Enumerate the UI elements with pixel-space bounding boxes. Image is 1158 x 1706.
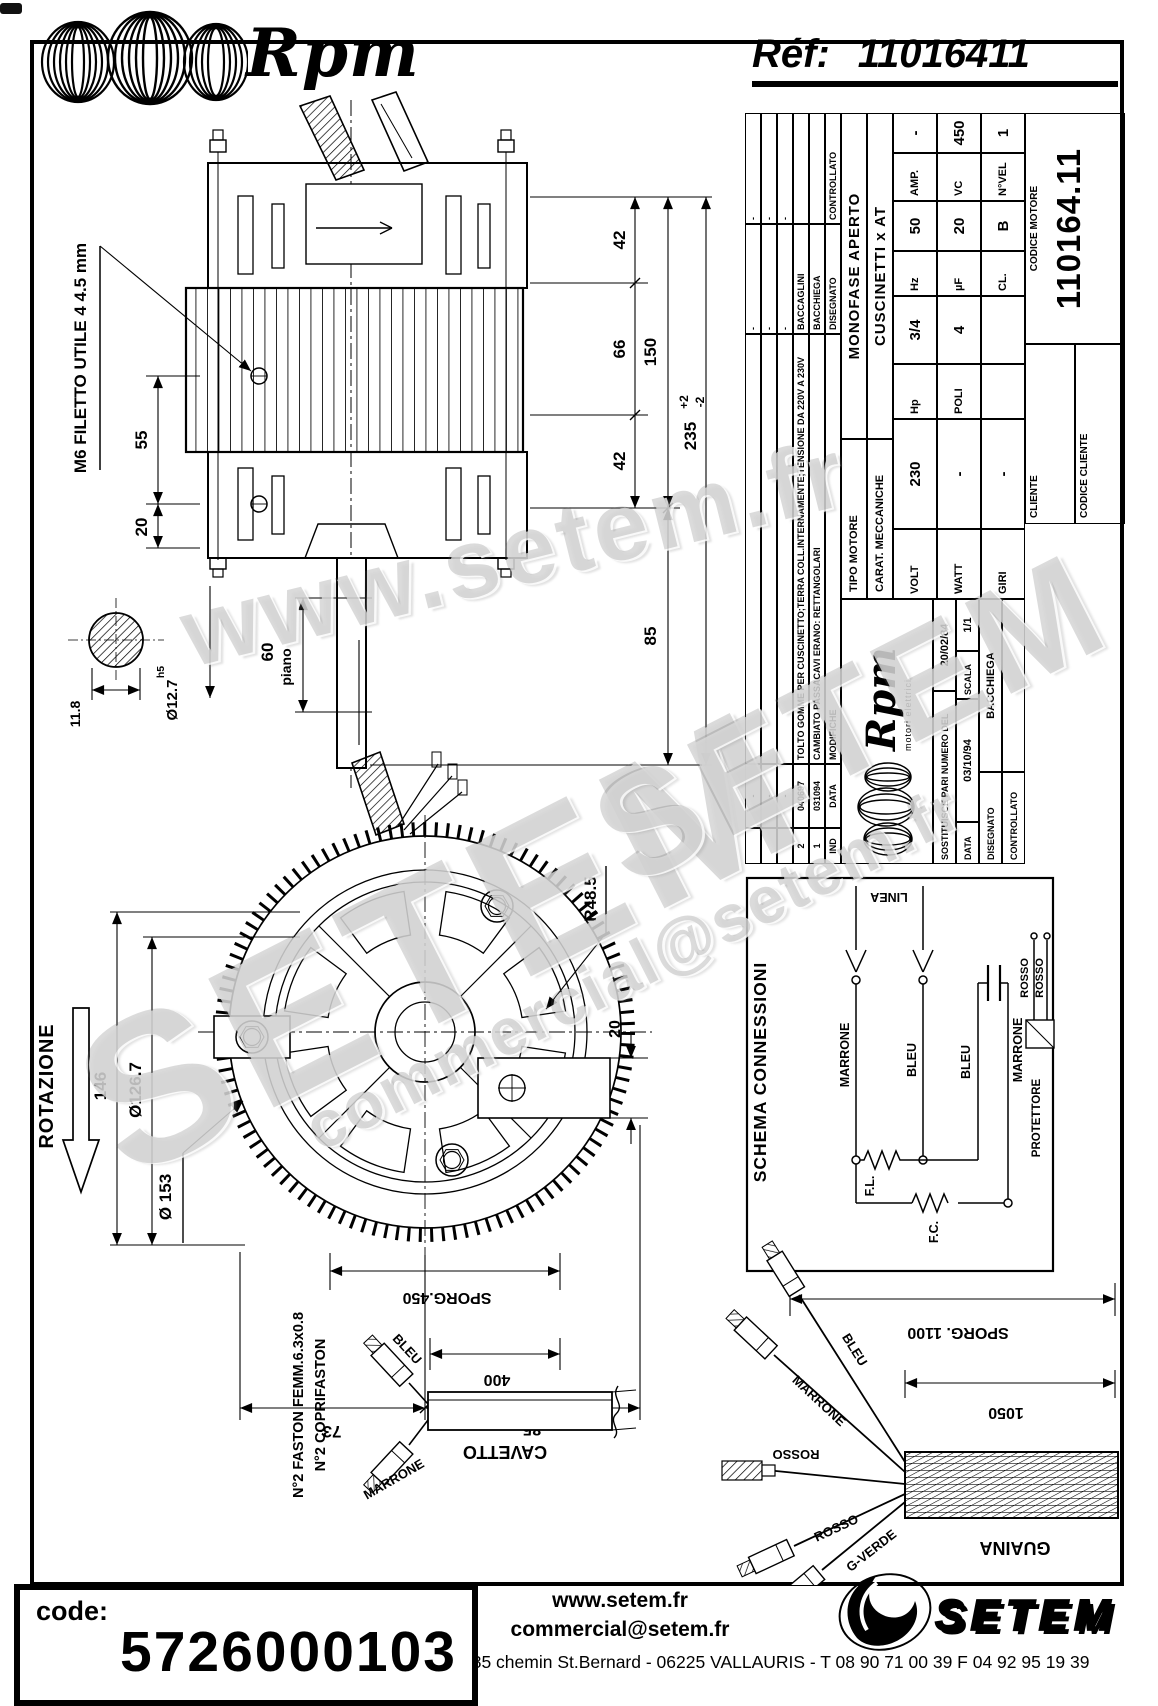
dim-146: 146 bbox=[91, 1072, 110, 1100]
label-rosso-1: ROSSO bbox=[1019, 958, 1031, 998]
schema-title: SCHEMA CONNESSIONI bbox=[750, 962, 770, 1183]
rpm-brand-text: Rpm bbox=[246, 14, 420, 92]
rpm-logo-small: Rpm motori elettrici bbox=[841, 599, 933, 864]
revision-header-row: INDDATAMODIFICHEDISEGNATOCONTROLLATO bbox=[825, 113, 841, 864]
sostituisce-row: SOSTITUISCE PARI NUMERO DEL20/02/84 bbox=[933, 599, 956, 864]
ref-value: 11016411 bbox=[858, 32, 1030, 76]
tol-plus: +2 bbox=[677, 395, 691, 409]
website: www.setem.fr bbox=[480, 1586, 760, 1615]
controllato-row: CONTROLLATO bbox=[1002, 599, 1025, 864]
contact-block: www.setem.fr commercial@setem.fr bbox=[480, 1586, 760, 1644]
dim-1050: 1050 bbox=[988, 1404, 1024, 1421]
dim-42-top: 42 bbox=[610, 231, 629, 250]
setem-logo: SETEM SETEM bbox=[835, 1568, 1135, 1660]
dim-55: 55 bbox=[132, 431, 151, 450]
cavetto-drawing: SPORG.450 400 CAVETTO BLEU MARRONE N°2 F… bbox=[230, 1240, 640, 1575]
schema-connessioni: SCHEMA CONNESSIONI LINEA MARRONE BLEU BL… bbox=[745, 876, 1061, 1276]
motor-side-view: M6 FILETTO UTILE 4 4.5 mm 55 20 42 66 42… bbox=[30, 88, 740, 800]
dim-66: 66 bbox=[610, 340, 629, 359]
dim-400: 400 bbox=[484, 1371, 511, 1388]
label-rosso-1: ROSSO bbox=[773, 1447, 820, 1462]
dim-shaft: Ø12.7 bbox=[164, 680, 181, 721]
note-coprifaston: N°2 COPRIFASTON bbox=[313, 1339, 329, 1472]
label-rosso-2: ROSSO bbox=[1034, 958, 1046, 998]
codice-motore-value: 110164.11 bbox=[1050, 148, 1088, 309]
scan-artifact bbox=[0, 3, 22, 14]
carat-meccaniche-row: CARAT. MECCANICHECUSCINETTI x AT bbox=[867, 113, 893, 599]
guaina-drawing: SPORG. 1100 1050 GUAINA BLEU MARRONE ROS… bbox=[700, 1225, 1128, 1585]
dim-85: 85 bbox=[641, 627, 660, 646]
code-value: 5726000103 bbox=[120, 1619, 472, 1685]
spec-row: WATT-POLI4µF20VC450 bbox=[937, 113, 981, 599]
data-scala-row: DATA03/10/94SCALA1/1 bbox=[956, 599, 979, 864]
label-protettore: PROTETTORE bbox=[1031, 1078, 1043, 1157]
note-faston: N°2 FASTON FEMM.6.3x0.8 bbox=[291, 1312, 307, 1498]
schema-labels: SCHEMA CONNESSIONI LINEA MARRONE BLEU BL… bbox=[750, 890, 1046, 1243]
dim-20: 20 bbox=[607, 1020, 624, 1038]
email: commercial@setem.fr bbox=[480, 1615, 760, 1644]
codice-motore-cell: CODICE MOTORE 110164.11 bbox=[1025, 113, 1125, 344]
side-view-geometry bbox=[186, 92, 527, 788]
dim-sporg-1100: SPORG. 1100 bbox=[907, 1324, 1008, 1341]
label-bleu-1: BLEU bbox=[905, 1043, 919, 1077]
dim-235: 235 bbox=[681, 422, 700, 450]
label-bleu-2: BLEU bbox=[959, 1045, 973, 1079]
revision-table: --- --- --- 2040697TOLTO GOMME PER CUSCI… bbox=[745, 113, 841, 864]
reference-number: Réf:11016411 bbox=[752, 32, 1118, 87]
tipo-motore-row: TIPO MOTOREMONOFASE APERTO bbox=[841, 113, 867, 599]
label-linea: LINEA bbox=[870, 890, 908, 904]
spec-row: GIRI-CL.BN°VEL1 bbox=[981, 113, 1025, 599]
rpm-brand-small: Rpm bbox=[862, 647, 902, 751]
revision-row-2: 2040697TOLTO GOMME PER CUSCINETTO;TERRA … bbox=[793, 113, 809, 864]
dim-126-7: Ø126.7 bbox=[126, 1062, 145, 1118]
revision-row: --- bbox=[761, 113, 777, 864]
dim-153: Ø 153 bbox=[156, 1174, 175, 1220]
title-block-center: TIPO MOTOREMONOFASE APERTO CARAT. MECCAN… bbox=[841, 113, 1025, 599]
label-piano: piano bbox=[278, 648, 294, 685]
fit-h5: h5 bbox=[155, 666, 167, 678]
tol-minus: -2 bbox=[693, 396, 707, 407]
label-marrone: MARRONE bbox=[789, 1372, 849, 1429]
dim-20: 20 bbox=[132, 518, 151, 537]
cliente-cell: CLIENTE bbox=[1025, 344, 1075, 524]
revision-row-1: 1031094CAMBIATO PASSACAVI ERANO: RETTANG… bbox=[809, 113, 825, 864]
title-block: --- --- --- 2040697TOLTO GOMME PER CUSCI… bbox=[745, 113, 1125, 864]
revision-row: --- bbox=[777, 113, 793, 864]
label-rotazione: ROTAZIONE bbox=[36, 1023, 58, 1148]
dim-11-8: 11.8 bbox=[67, 701, 83, 728]
dim-r48-5: R48.5 bbox=[581, 876, 600, 921]
code-box: code: 5726000103 bbox=[14, 1584, 478, 1706]
revision-row: --- bbox=[745, 113, 761, 864]
setem-text: SETEM bbox=[935, 1591, 1117, 1640]
label-rosso-2: ROSSO bbox=[812, 1511, 861, 1544]
label-guaina: GUAINA bbox=[980, 1538, 1051, 1558]
spec-row: VOLT230Hp3/4Hz50AMP.- bbox=[893, 113, 937, 599]
guaina-labels: SPORG. 1100 1050 GUAINA BLEU MARRONE ROS… bbox=[773, 1324, 1051, 1575]
disegnato-row: DISEGNATOBACCHIEGA bbox=[979, 599, 1002, 864]
dim-60: 60 bbox=[258, 643, 277, 662]
label-cavetto: CAVETTO bbox=[463, 1442, 547, 1462]
dim-sporg-450: SPORG.450 bbox=[402, 1289, 491, 1306]
label-marrone-1: MARRONE bbox=[838, 1023, 852, 1088]
label-marrone-2: MARRONE bbox=[1011, 1018, 1025, 1083]
rpm-coils-small-icon bbox=[856, 761, 918, 857]
label-bleu: BLEU bbox=[839, 1331, 870, 1369]
ref-label: Réf: bbox=[752, 32, 830, 76]
setem-swoosh-icon bbox=[847, 1575, 917, 1646]
title-block-left: Rpm motori elettrici SOSTITUISCE PARI NU… bbox=[841, 599, 1025, 864]
label-fl: F.L. bbox=[863, 1176, 877, 1197]
dim-150: 150 bbox=[641, 338, 660, 366]
cliente-column: CLIENTE CODICE CLIENTE bbox=[1025, 344, 1125, 524]
codice-cliente-cell: CODICE CLIENTE bbox=[1075, 344, 1125, 524]
front-view-geometry bbox=[198, 752, 652, 1255]
callout-m6: M6 FILETTO UTILE 4 4.5 mm bbox=[71, 243, 90, 473]
dim-42-bot: 42 bbox=[610, 452, 629, 471]
